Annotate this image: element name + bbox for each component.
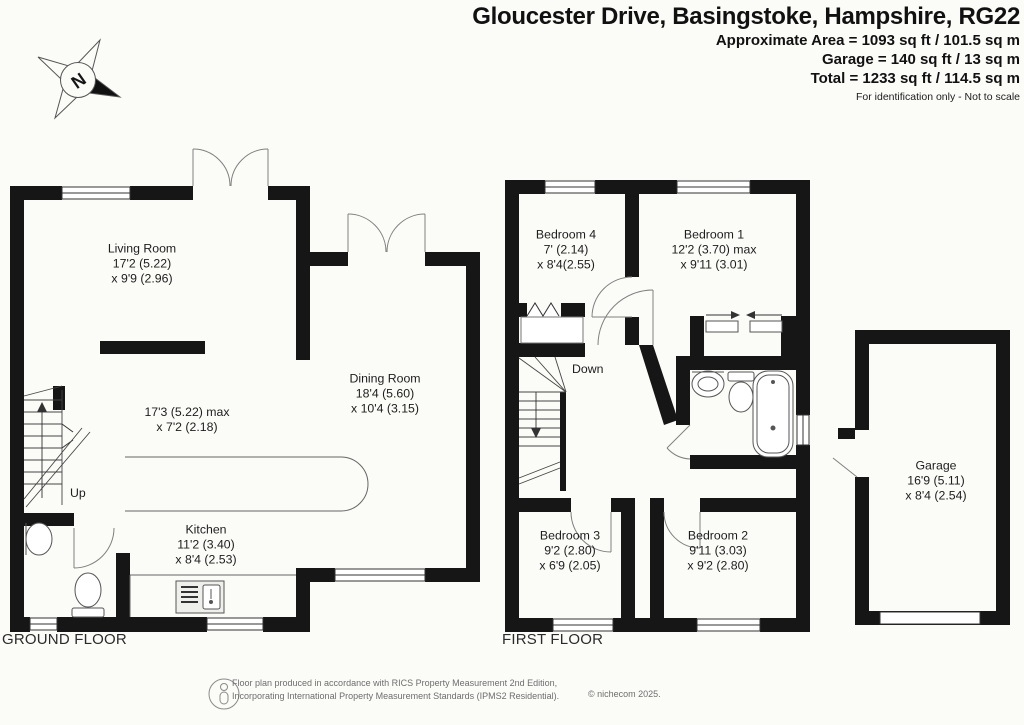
- bed1-wardrobe-2: [750, 321, 782, 332]
- ground-floor-doors: [62, 149, 425, 568]
- kitchen-worktop-peninsula: [125, 457, 368, 511]
- down-arrow-icon: [531, 428, 541, 438]
- slide-arrow-left-icon: [746, 311, 755, 319]
- bathroom-toilet-cistern: [728, 372, 754, 381]
- footer-disclaimer: Floor plan produced in accordance with R…: [232, 677, 559, 702]
- garage-side-door: [833, 458, 857, 477]
- footer-line-1: Floor plan produced in accordance with R…: [232, 677, 559, 690]
- label-hall-dimensions: 17'3 (5.22) max x 7'2 (2.18): [144, 405, 229, 435]
- floorplan-drawing: N: [0, 0, 1024, 725]
- compass-rose: N: [38, 40, 120, 118]
- wc-basin: [26, 523, 52, 555]
- label-dining-room: Dining Room 18'4 (5.60) x 10'4 (3.15): [349, 372, 420, 417]
- total-area: Total = 1233 sq ft / 114.5 sq m: [472, 69, 1020, 88]
- label-bedroom-2: Bedroom 2 9'11 (3.03) x 9'2 (2.80): [687, 529, 748, 574]
- slide-arrow-right-icon: [731, 311, 740, 319]
- garage-area: Garage = 140 sq ft / 13 sq m: [472, 50, 1020, 69]
- garage-door: [880, 612, 980, 624]
- label-garage: Garage 16'9 (5.11) x 8'4 (2.54): [905, 459, 966, 504]
- footer-line-2: Incorporating International Property Mea…: [232, 690, 559, 703]
- bifold-door: [527, 303, 559, 316]
- wc-toilet: [75, 573, 101, 607]
- bed4-wardrobe: [521, 317, 583, 343]
- first-floor-stairs: [519, 357, 566, 484]
- approximate-area: Approximate Area = 1093 sq ft / 101.5 sq…: [472, 31, 1020, 50]
- bathroom-toilet: [729, 382, 753, 412]
- landing-angled-wall: [639, 345, 678, 425]
- page-title: Gloucester Drive, Basingstoke, Hampshire…: [472, 3, 1020, 31]
- label-bedroom-4: Bedroom 4 7' (2.14) x 8'4(2.55): [536, 228, 596, 273]
- header-block: Gloucester Drive, Basingstoke, Hampshire…: [472, 3, 1020, 103]
- label-bedroom-1: Bedroom 1 12'2 (3.70) max x 9'11 (3.01): [671, 228, 756, 273]
- footer-copyright: © nichecom 2025.: [588, 689, 661, 699]
- label-kitchen: Kitchen 11'2 (3.40) x 8'4 (2.53): [175, 523, 236, 568]
- up-arrow-icon: [37, 402, 47, 412]
- stairs-down-label: Down: [572, 362, 603, 376]
- label-living-room: Living Room 17'2 (5.22) x 9'9 (2.96): [108, 242, 176, 287]
- ground-floor-title: GROUND FLOOR: [2, 631, 127, 648]
- floorplan-page: N: [0, 0, 1024, 725]
- first-floor-title: FIRST FLOOR: [502, 631, 603, 648]
- stairs-up-label: Up: [70, 486, 86, 500]
- disclaimer-text: For identification only - Not to scale: [472, 91, 1020, 103]
- bed1-wardrobe-1: [706, 321, 738, 332]
- label-bedroom-3: Bedroom 3 9'2 (2.80) x 6'9 (2.05): [539, 529, 600, 574]
